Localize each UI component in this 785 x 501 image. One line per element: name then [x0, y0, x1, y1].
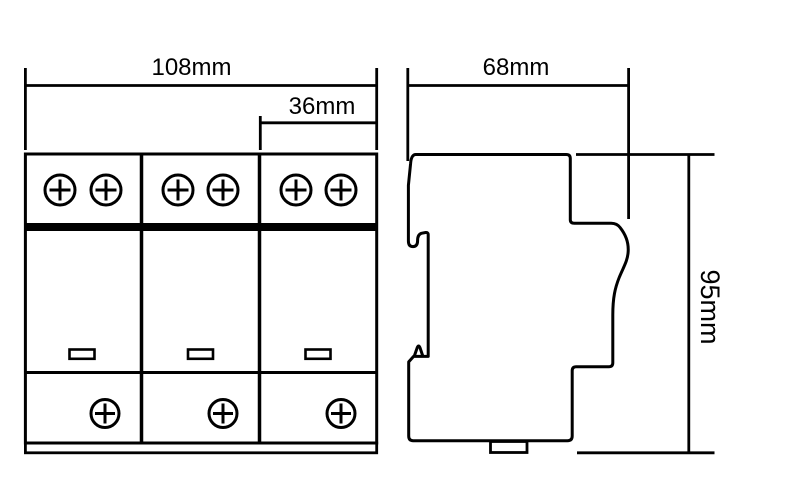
- svg-text:36mm: 36mm: [289, 93, 356, 120]
- svg-text:68mm: 68mm: [483, 54, 550, 81]
- svg-text:95mm: 95mm: [695, 269, 725, 344]
- svg-text:108mm: 108mm: [151, 54, 231, 81]
